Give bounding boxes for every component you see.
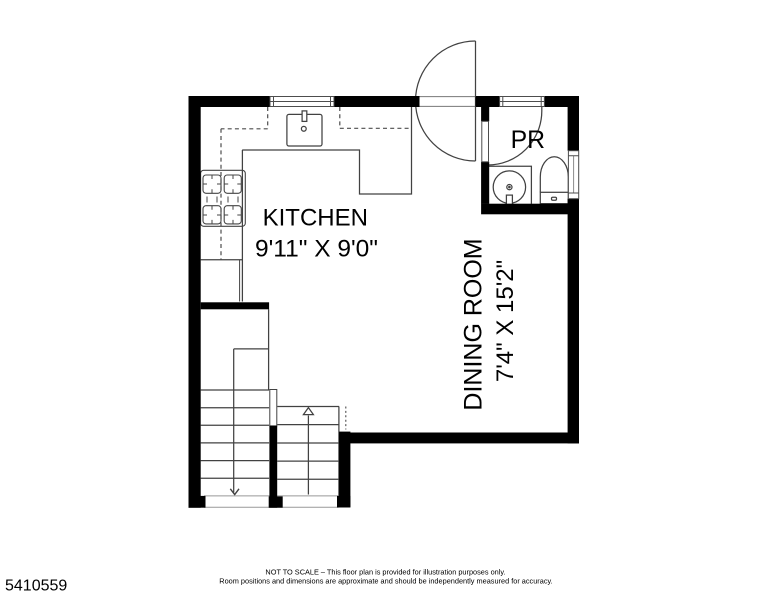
svg-text:9'11" X 9'0": 9'11" X 9'0" — [255, 235, 378, 262]
svg-text:5410559: 5410559 — [5, 578, 67, 594]
svg-text:PR: PR — [511, 127, 545, 154]
svg-text:NOT TO SCALE – This floor plan: NOT TO SCALE – This floor plan is provid… — [265, 568, 505, 577]
svg-text:7'4" X 15'2": 7'4" X 15'2" — [492, 260, 519, 382]
svg-text:DINING ROOM: DINING ROOM — [460, 238, 488, 410]
svg-text:KITCHEN: KITCHEN — [263, 205, 368, 232]
svg-text:Room positions and dimensions: Room positions and dimensions are approx… — [219, 576, 552, 585]
